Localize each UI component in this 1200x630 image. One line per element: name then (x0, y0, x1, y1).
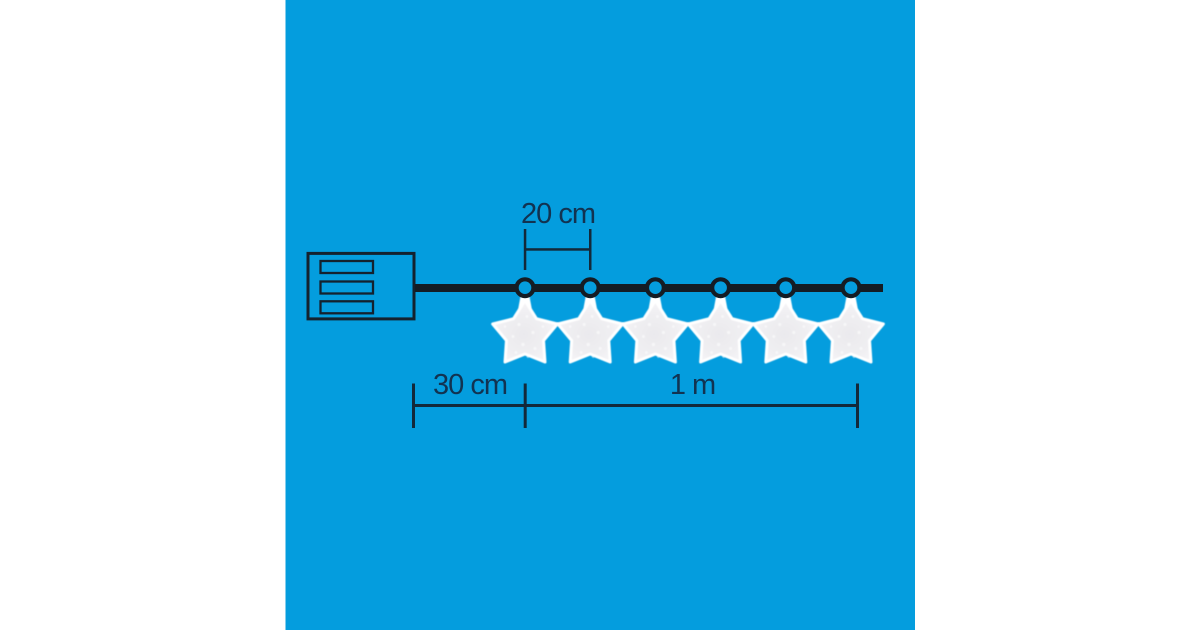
svg-text:1 m: 1 m (670, 369, 715, 401)
svg-text:20 cm: 20 cm (521, 198, 595, 230)
svg-text:30 cm: 30 cm (433, 369, 507, 401)
